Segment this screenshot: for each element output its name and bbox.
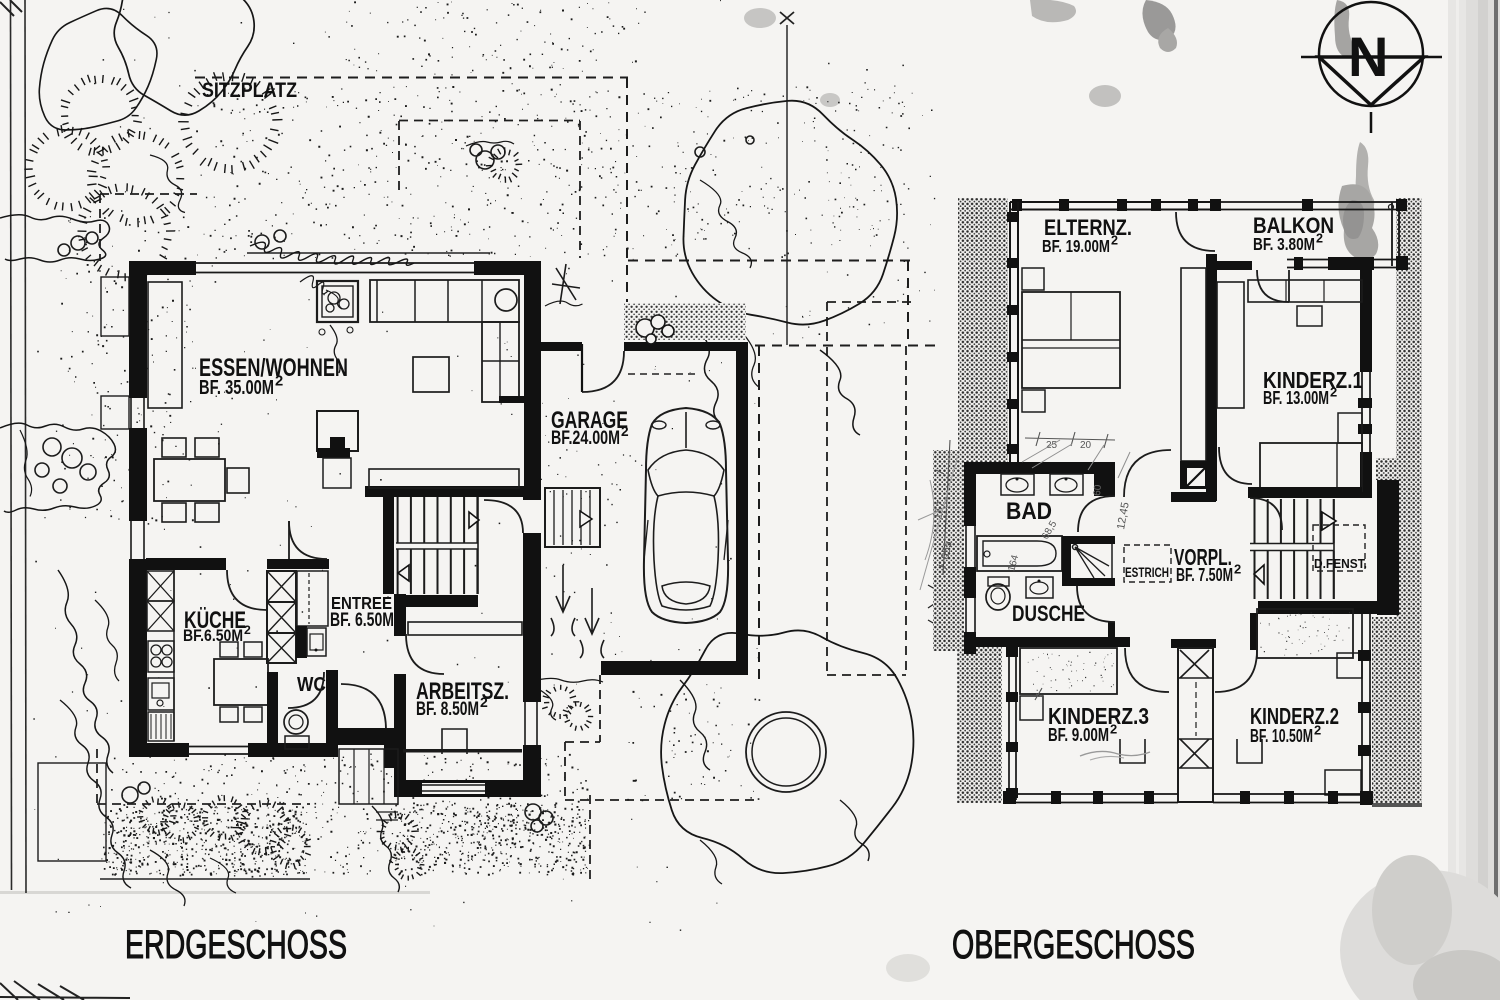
svg-text:BF. 13.00M: BF. 13.00M: [1263, 388, 1329, 408]
svg-text:BF. 9.00M: BF. 9.00M: [1048, 725, 1109, 745]
svg-text:BF. 6.50M: BF. 6.50M: [330, 610, 394, 631]
svg-text:DUSCHE: DUSCHE: [1012, 601, 1085, 626]
svg-text:2: 2: [1316, 232, 1323, 246]
svg-text:BF. 10.50M: BF. 10.50M: [1250, 726, 1313, 746]
svg-text:BF. 7.50M: BF. 7.50M: [1176, 565, 1233, 585]
svg-text:BF.24.00M: BF.24.00M: [551, 428, 620, 449]
svg-text:2: 2: [1234, 561, 1241, 576]
svg-text:2: 2: [1314, 722, 1321, 737]
svg-text:2: 2: [1330, 384, 1337, 399]
svg-text:20: 20: [1080, 440, 1092, 451]
svg-text:60: 60: [1092, 484, 1104, 496]
svg-text:D.FENST.: D.FENST.: [1314, 556, 1367, 571]
svg-text:BAD: BAD: [1006, 498, 1052, 525]
svg-text:BF. 19.00M: BF. 19.00M: [1042, 236, 1110, 256]
svg-text:BF. 8.50M: BF. 8.50M: [416, 698, 479, 720]
svg-text:SITZPLATZ: SITZPLATZ: [202, 79, 297, 102]
svg-text:25: 25: [1046, 440, 1058, 451]
svg-text:2: 2: [1111, 234, 1118, 248]
svg-text:BF. 35.00M: BF. 35.00M: [199, 376, 274, 399]
svg-text:2: 2: [621, 424, 629, 439]
svg-text:2: 2: [275, 373, 283, 389]
svg-text:2: 2: [480, 694, 488, 710]
svg-text:2: 2: [244, 623, 251, 637]
svg-text:ESTRICH: ESTRICH: [1125, 565, 1169, 580]
svg-text:BF.6.50M: BF.6.50M: [183, 626, 243, 645]
svg-text:N: N: [1348, 25, 1388, 88]
svg-text:OBERGESCHOSS: OBERGESCHOSS: [952, 923, 1195, 967]
svg-text:BF. 3.80M: BF. 3.80M: [1253, 234, 1315, 254]
svg-text:ERDGESCHOSS: ERDGESCHOSS: [125, 923, 347, 967]
svg-text:2: 2: [1110, 721, 1117, 736]
